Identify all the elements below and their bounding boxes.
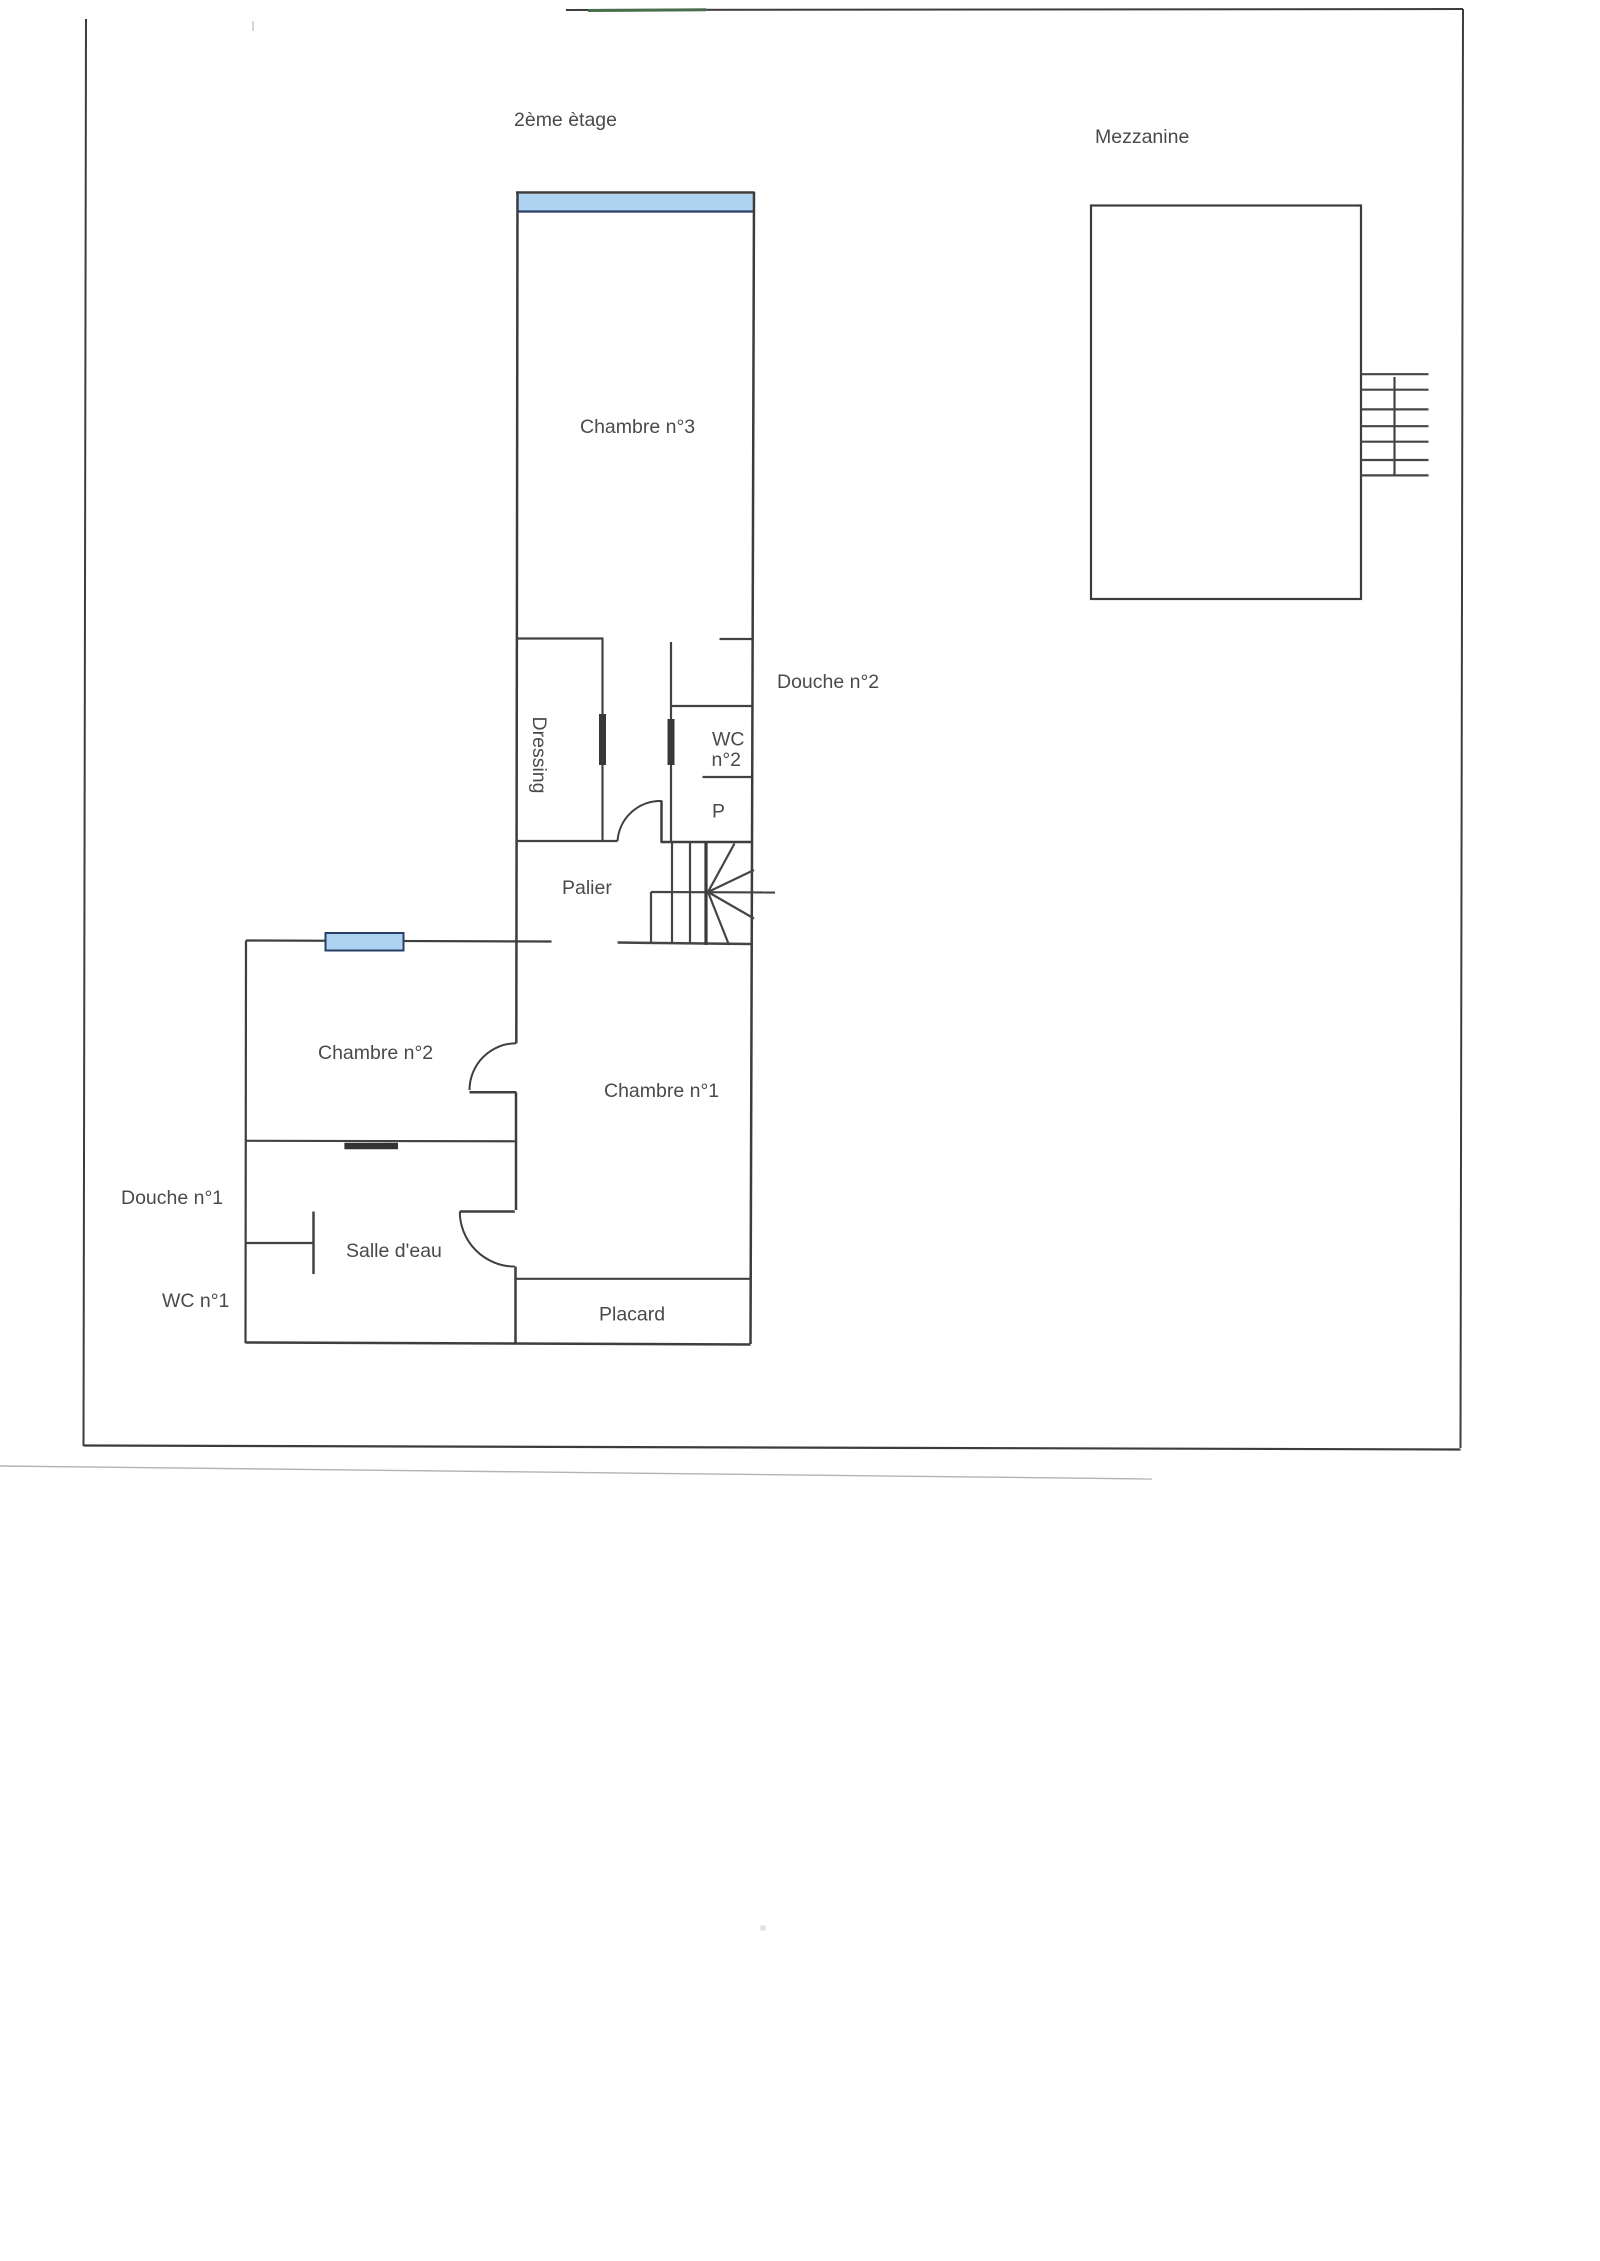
svg-text:2ème ètage: 2ème ètage (514, 109, 617, 131)
svg-text:Chambre n°2: Chambre n°2 (318, 1042, 433, 1064)
svg-text:Douche n°2: Douche n°2 (777, 671, 879, 693)
svg-text:Chambre n°1: Chambre n°1 (604, 1080, 719, 1102)
svg-text:Salle d'eau: Salle d'eau (346, 1240, 442, 1262)
svg-text:Douche n°1: Douche n°1 (121, 1187, 223, 1209)
svg-text:WC n°1: WC n°1 (162, 1290, 229, 1312)
svg-text:WC: WC (712, 729, 745, 751)
svg-text:Palier: Palier (562, 877, 612, 899)
svg-text:P: P (712, 801, 725, 823)
svg-text:n°2: n°2 (712, 749, 742, 771)
svg-text:Dressing: Dressing (528, 717, 550, 794)
svg-text:Mezzanine: Mezzanine (1095, 126, 1189, 148)
svg-text:Chambre n°3: Chambre n°3 (580, 416, 695, 438)
svg-text:Placard: Placard (599, 1304, 665, 1326)
